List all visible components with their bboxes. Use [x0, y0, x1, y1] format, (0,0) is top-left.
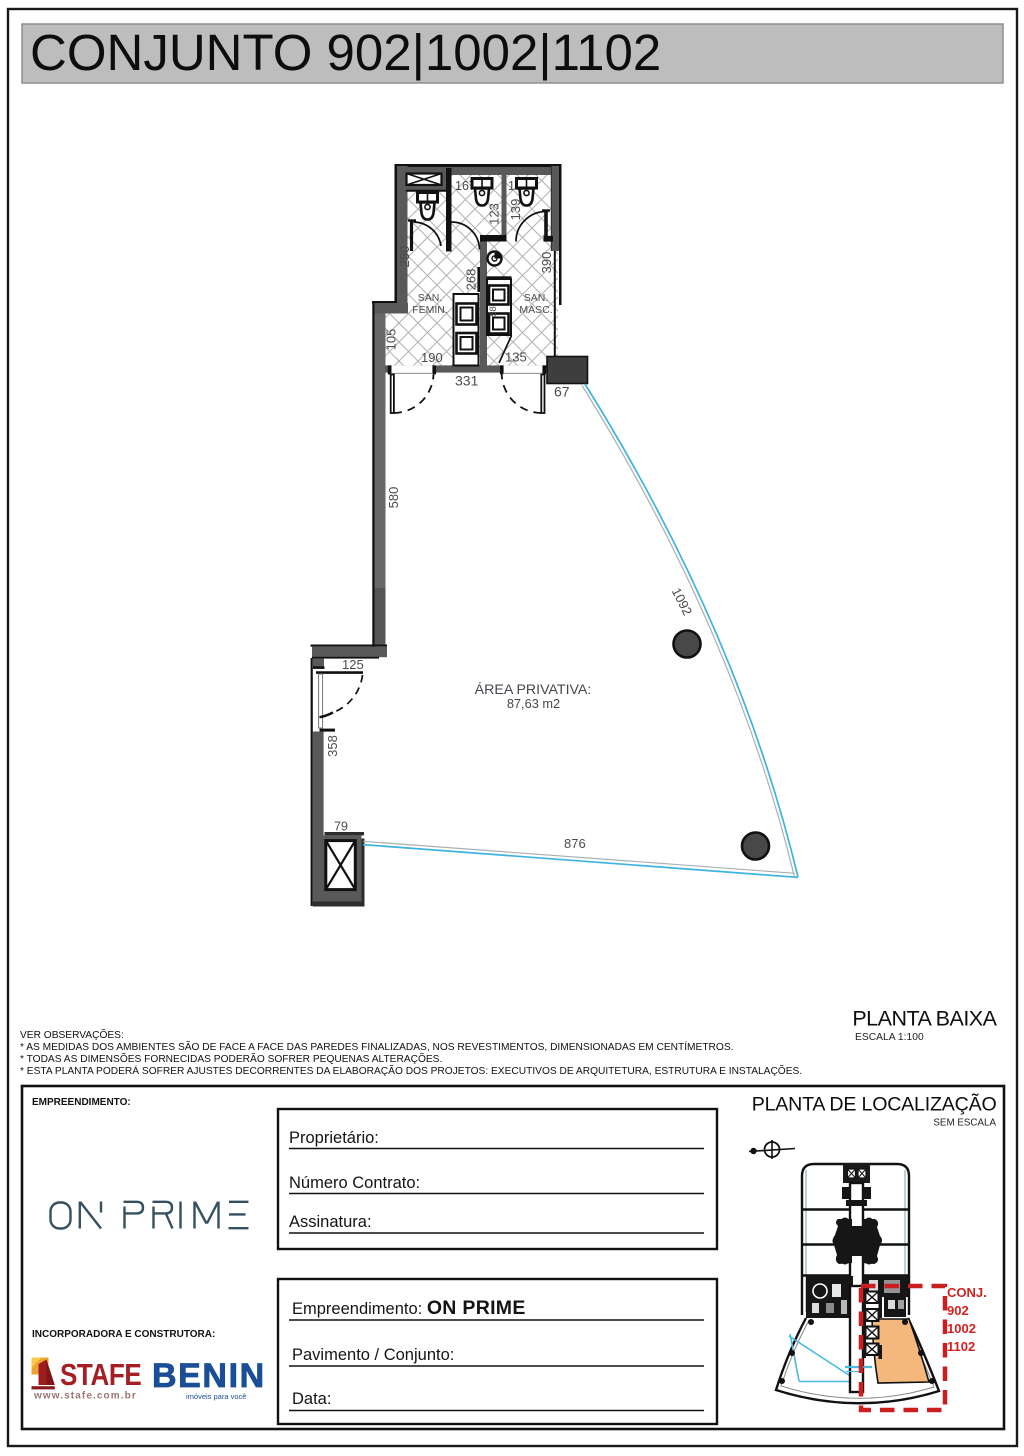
svg-text:Assinatura:: Assinatura: [289, 1213, 372, 1231]
svg-text:INCORPORADORA E CONSTRUTORA:: INCORPORADORA E CONSTRUTORA: [32, 1329, 215, 1340]
svg-text:BENIN: BENIN [152, 1357, 266, 1395]
svg-text:STAFE: STAFE [60, 1358, 141, 1393]
svg-text:67: 67 [554, 384, 570, 400]
svg-text:PLANTA DE LOCALIZAÇÃO: PLANTA DE LOCALIZAÇÃO [752, 1092, 997, 1116]
svg-text:Proprietário:: Proprietário: [289, 1129, 379, 1147]
svg-text:390: 390 [539, 252, 554, 274]
svg-text:123: 123 [487, 203, 502, 225]
svg-text:ESCALA 1:100: ESCALA 1:100 [855, 1032, 924, 1043]
svg-text:125: 125 [342, 657, 364, 672]
svg-text:PLANTA BAIXA: PLANTA BAIXA [852, 1007, 997, 1031]
svg-text:* TODAS AS DIMENSÕES FORNECIDA: * TODAS AS DIMENSÕES FORNECIDAS PODERÃO … [20, 1052, 442, 1065]
svg-text:331: 331 [455, 373, 479, 389]
svg-text:Empreendimento: ON PRIME: Empreendimento: ON PRIME [292, 1297, 526, 1319]
svg-text:VER OBSERVAÇÕES:: VER OBSERVAÇÕES: [20, 1028, 124, 1041]
svg-text:CONJUNTO 902|1002|1102: CONJUNTO 902|1002|1102 [30, 24, 661, 81]
svg-text:79: 79 [334, 820, 348, 834]
svg-text:1102: 1102 [947, 1339, 975, 1354]
svg-text:* ESTA PLANTA PODERÁ SOFRER AJ: * ESTA PLANTA PODERÁ SOFRER AJUSTES DECO… [20, 1064, 802, 1077]
svg-text:MASC.: MASC. [519, 304, 552, 316]
svg-text:580: 580 [386, 487, 401, 509]
svg-text:105: 105 [384, 329, 399, 351]
svg-text:358: 358 [325, 735, 340, 757]
svg-text:Pavimento / Conjunto:: Pavimento / Conjunto: [292, 1346, 454, 1364]
svg-text:876: 876 [564, 836, 586, 851]
svg-text:FEMIN.: FEMIN. [412, 304, 448, 316]
svg-text:135: 135 [505, 350, 527, 365]
svg-text:250: 250 [397, 246, 412, 268]
svg-text:www.stafe.com.br: www.stafe.com.br [33, 1391, 137, 1402]
svg-text:* AS MEDIDAS DOS AMBIENTES SÃO: * AS MEDIDAS DOS AMBIENTES SÃO DE FACE A… [20, 1040, 733, 1053]
svg-text:Data:: Data: [292, 1390, 331, 1408]
svg-text:SEM ESCALA: SEM ESCALA [933, 1118, 996, 1129]
svg-text:139: 139 [508, 199, 523, 221]
svg-text:190: 190 [421, 350, 443, 365]
svg-text:268: 268 [464, 269, 479, 291]
svg-text:CONJ.: CONJ. [947, 1285, 987, 1300]
svg-text:87,63 m2: 87,63 m2 [507, 696, 560, 711]
svg-text:1002: 1002 [947, 1321, 976, 1336]
svg-text:Número Contrato:: Número Contrato: [289, 1174, 420, 1192]
svg-text:58: 58 [488, 306, 499, 317]
svg-text:902: 902 [947, 1303, 969, 1318]
svg-text:imóveis para você: imóveis para você [186, 1392, 246, 1401]
svg-text:SAN.: SAN. [418, 292, 443, 304]
svg-text:EMPREENDIMENTO:: EMPREENDIMENTO: [32, 1097, 131, 1108]
svg-text:SAN.: SAN. [524, 292, 549, 304]
